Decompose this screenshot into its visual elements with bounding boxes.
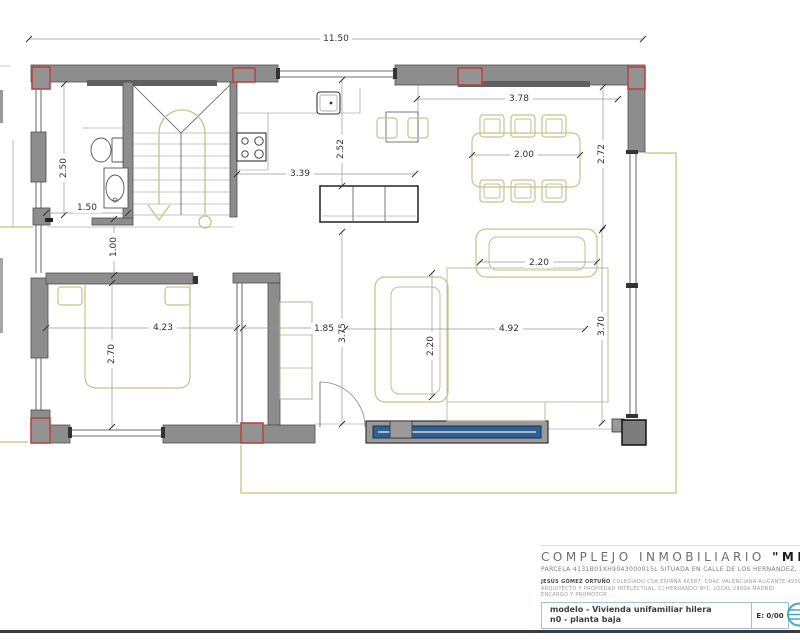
model-name: modelo - Vivienda unifamiliar hilera <box>550 605 751 615</box>
bed <box>85 285 190 388</box>
svg-text:11.50: 11.50 <box>323 34 349 44</box>
kitchen <box>237 85 428 222</box>
sheet-bottom-rule <box>0 630 800 633</box>
dim-living-depth: 3.70 <box>597 227 608 426</box>
glass-slider <box>366 421 548 443</box>
free-column <box>612 419 646 445</box>
svg-text:2.72: 2.72 <box>597 144 607 164</box>
dim-hall2-width: 1.85 <box>240 323 348 334</box>
sofa <box>375 277 448 402</box>
dim-bedroom-depth: 2.70 <box>107 280 118 430</box>
svg-text:3.39: 3.39 <box>290 169 310 179</box>
dim-loveseat-width: 2.20 <box>477 257 600 268</box>
svg-text:1.00: 1.00 <box>109 237 119 257</box>
architect-name: JESÚS GÓMEZ ORTUÑO <box>541 579 613 585</box>
project-title-regular: COMPLEJO INMOBILIARIO <box>541 550 772 564</box>
floorplan-sheet: 11.50 2.50 1.50 1.00 2.70 4.23 1.85 3.75 <box>0 0 800 640</box>
bedroom <box>58 285 190 388</box>
dim-dining-table-width: 2.00 <box>469 149 583 160</box>
architect-credentials: COLEGIADO CSA ESPAÑA 66587. COAC VALENCI… <box>613 579 800 585</box>
kitchen-island <box>320 186 418 222</box>
bathroom-fixtures <box>82 128 128 208</box>
dim-dining-depth: 2.72 <box>597 84 608 231</box>
studio-logo-icon <box>786 601 800 628</box>
wardrobe <box>280 302 312 399</box>
svg-text:2.50: 2.50 <box>59 158 69 178</box>
model-cell: modelo - Vivienda unifamiliar hilera n0 … <box>542 603 751 628</box>
toilet-tank <box>112 138 123 162</box>
dim-bath-depth: 2.50 <box>59 81 70 218</box>
entry-door <box>320 382 365 427</box>
rug <box>447 268 608 402</box>
svg-text:2.20: 2.20 <box>529 258 549 268</box>
architect-line-3: ENCARGO Y PROMOTOR . <box>541 592 611 598</box>
dim-sofa-depth: 2.20 <box>426 270 437 400</box>
toilet-bowl <box>91 138 111 162</box>
svg-text:2.20: 2.20 <box>426 336 436 356</box>
parcel-description: PARCELA 4131B01XH9043000015L SITUADA EN … <box>541 566 800 573</box>
svg-text:3.70: 3.70 <box>597 316 607 336</box>
bar-stool <box>377 118 397 138</box>
staircase <box>133 85 230 228</box>
project-title: COMPLEJO INMOBILIARIO "MIRADOR DEL MAR" <box>541 550 800 564</box>
scale-cell: E: 0/00 <box>751 603 788 628</box>
svg-text:3.75: 3.75 <box>338 323 348 343</box>
dim-living-inner-depth: 3.75 <box>338 229 349 427</box>
dim-total-width: 11.50 <box>26 33 646 44</box>
dim-kitchen-width: 3.39 <box>234 168 418 179</box>
floor-name: n0 - planta baja <box>550 615 751 625</box>
svg-text:2.00: 2.00 <box>514 150 534 160</box>
pillow <box>165 287 190 305</box>
dim-living-width: 4.92 <box>342 323 588 334</box>
architect-line-1: JESÚS GÓMEZ ORTUÑO COLEGIADO CSA ESPAÑA … <box>541 579 800 585</box>
svg-text:1.50: 1.50 <box>77 203 97 213</box>
sink-basin <box>106 175 124 201</box>
svg-text:2.70: 2.70 <box>107 344 117 364</box>
svg-text:2.52: 2.52 <box>336 139 346 159</box>
dim-dining-width: 3.78 <box>414 93 621 104</box>
svg-text:1.85: 1.85 <box>314 324 334 334</box>
svg-text:4.92: 4.92 <box>499 324 519 334</box>
svg-text:4.23: 4.23 <box>153 323 173 333</box>
floorplan-drawing: 11.50 2.50 1.50 1.00 2.70 4.23 1.85 3.75 <box>0 0 800 520</box>
drawing-info-box: modelo - Vivienda unifamiliar hilera n0 … <box>541 602 789 629</box>
dim-bedroom-width: 4.23 <box>43 322 240 333</box>
project-title-bold: "MIRADOR DEL MAR" <box>772 550 800 564</box>
doormat <box>447 402 545 421</box>
stairs-direction-arrow <box>159 110 205 214</box>
walls <box>31 65 645 443</box>
svg-text:3.78: 3.78 <box>509 94 529 104</box>
pillow <box>58 287 82 305</box>
titleblock-separator <box>540 545 800 546</box>
neighbour-marks <box>0 66 13 333</box>
